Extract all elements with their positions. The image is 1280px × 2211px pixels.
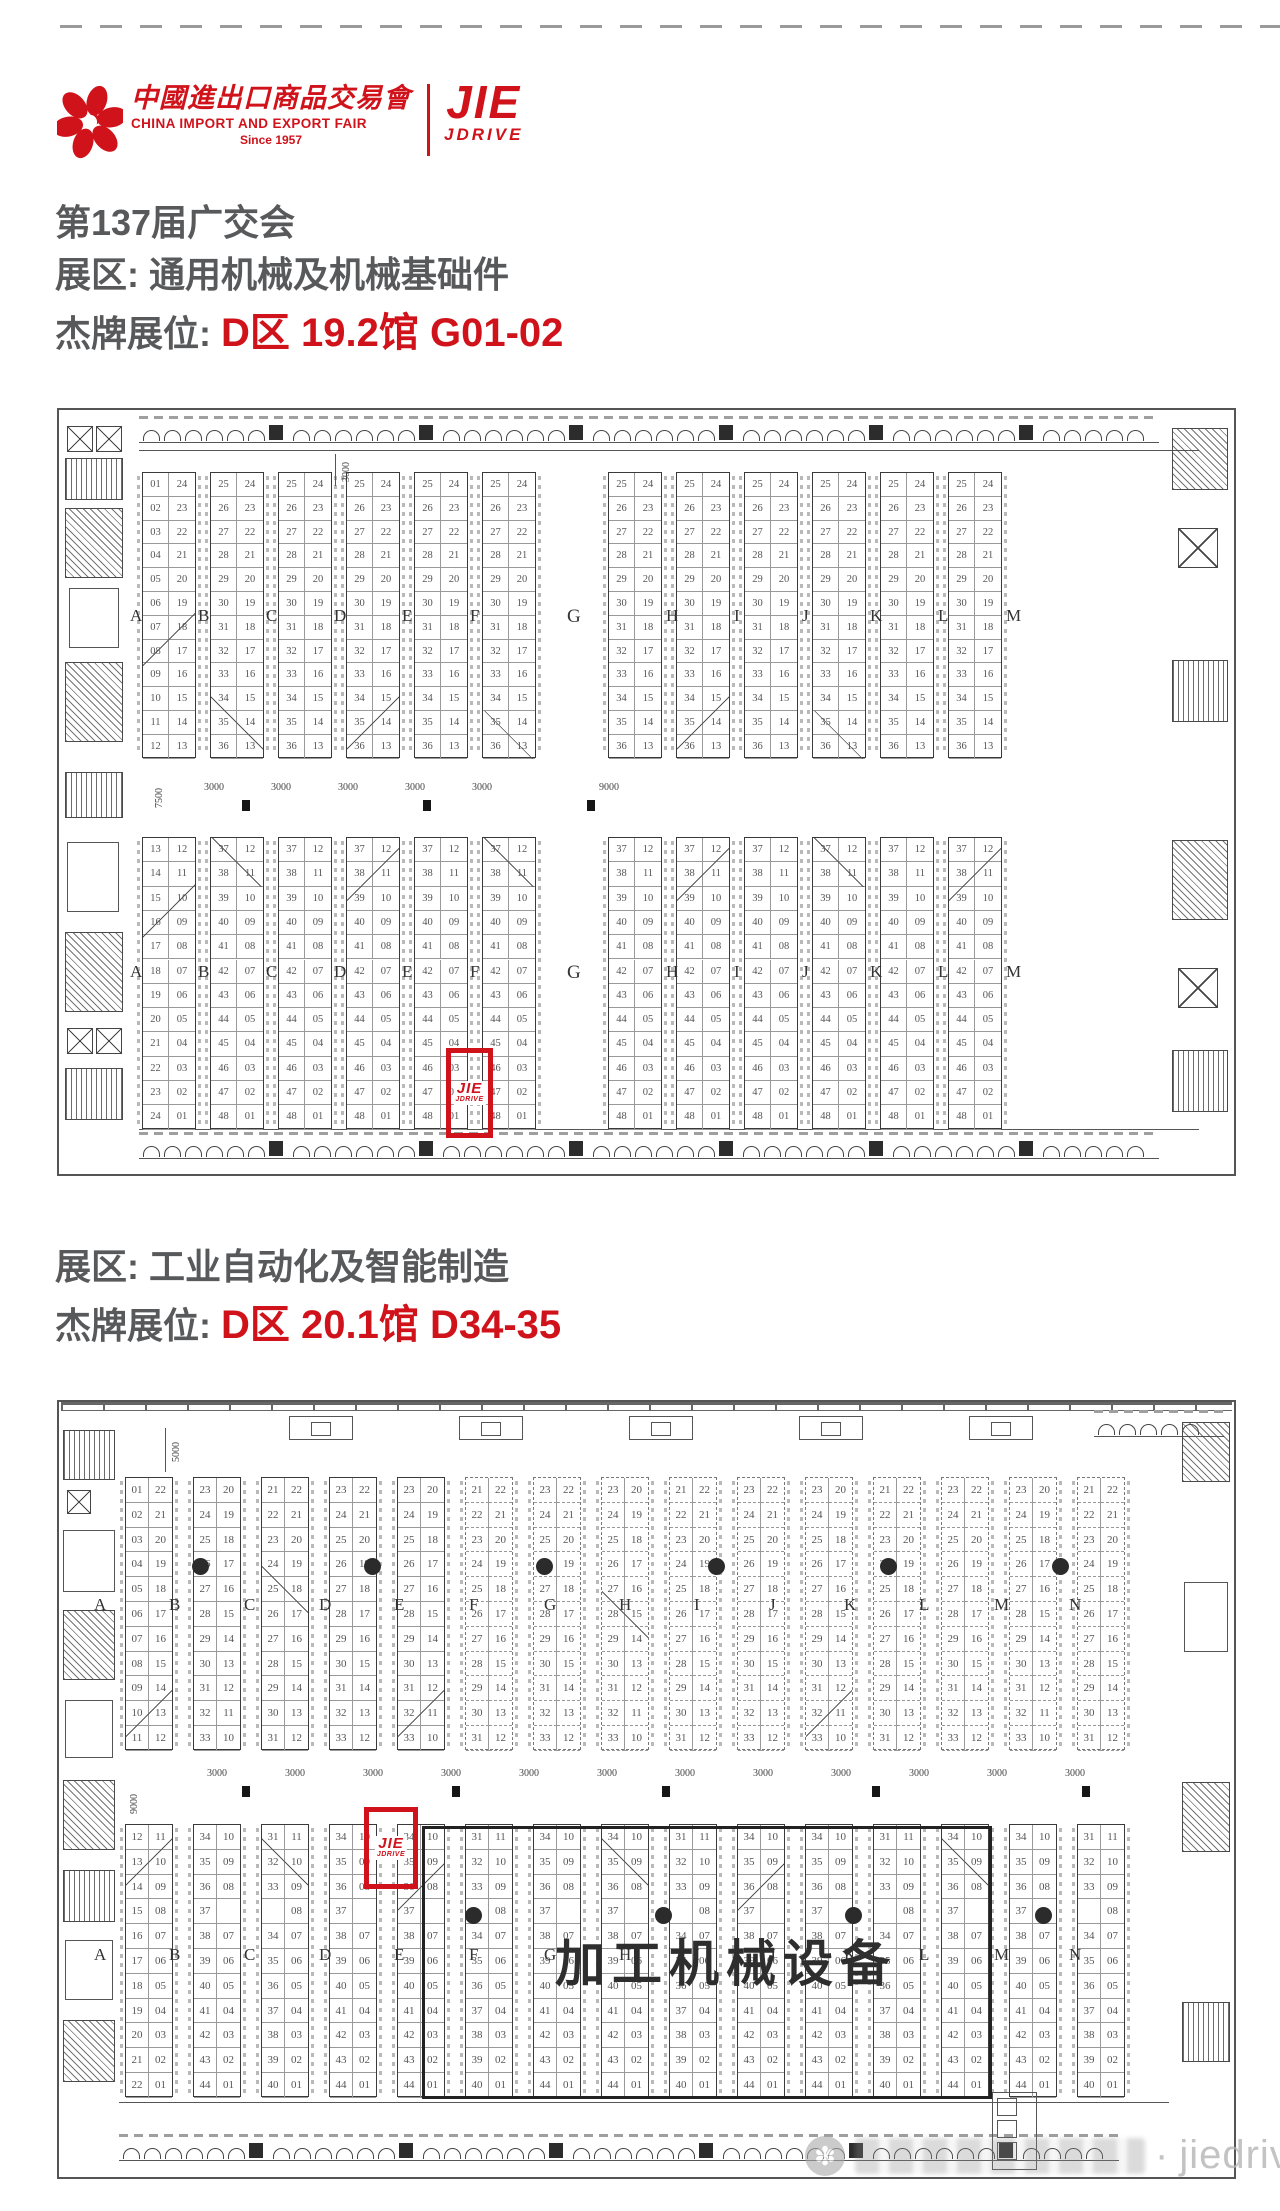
booth-cell: 23 (1010, 1478, 1033, 1503)
booth-cell: 26 (874, 1602, 897, 1627)
booth-cell: 43 (738, 2048, 761, 2073)
booth-cell: 15 (217, 1602, 240, 1627)
booth-cell: 03 (353, 2023, 376, 2048)
booth-cell: 12 (441, 838, 467, 862)
door-arc-icon (743, 430, 760, 441)
booth-cell: 25 (534, 1528, 557, 1553)
booth-cell: 45 (211, 1032, 237, 1056)
booth-cell: 17 (907, 640, 933, 664)
booth-cell: 36 (1010, 1875, 1033, 1900)
door-arc-icon (464, 1146, 481, 1157)
booth-cell: 12 (217, 1676, 240, 1701)
booth-cell: 45 (881, 1032, 907, 1056)
booth-cell: 05 (1101, 1974, 1124, 1999)
door-arc-icon (614, 1146, 631, 1157)
booth-cell: 20 (285, 1528, 308, 1553)
booth-island: 2524262327222821292030193118321733163415… (346, 472, 400, 758)
booth-cell: 23 (262, 1528, 285, 1553)
booth-cell: 29 (813, 568, 839, 592)
door-arc-icon (914, 430, 931, 441)
gate-block-icon (719, 1141, 733, 1156)
booth-cell: 01 (143, 473, 169, 497)
booth-cell: 43 (483, 984, 509, 1008)
booth-island: 3712381139104009410842074306440545044603… (676, 837, 730, 1129)
booth-cell: 12 (305, 838, 331, 862)
door-marker (1082, 1786, 1090, 1797)
booth-cell: 47 (677, 1081, 703, 1105)
micro-text-strip (311, 1828, 314, 2093)
taken-booth-slash (677, 838, 729, 911)
booth-cell: 09 (217, 1850, 240, 1875)
booth-cell: 21 (489, 1503, 512, 1528)
booth-cell: 16 (907, 663, 933, 687)
booth-cell: 20 (761, 1528, 784, 1553)
booth-cell (217, 1899, 240, 1924)
service-room (67, 842, 119, 912)
booth-cell: 16 (126, 1924, 149, 1949)
booth-cell: 18 (965, 1577, 988, 1602)
door-arc-icon (273, 2148, 290, 2159)
booth-cell: 14 (965, 1676, 988, 1701)
booth-cell: 14 (169, 711, 195, 735)
micro-text-strip (732, 1481, 735, 1746)
booth-cell: 29 (806, 1627, 829, 1652)
booth-cell: 38 (279, 862, 305, 886)
booth-cell: 41 (738, 1999, 761, 2024)
door-arc-icon (248, 430, 265, 441)
booth-cell: 25 (330, 1528, 353, 1553)
booth-cell: 06 (489, 1949, 512, 1974)
booth-cell: 03 (143, 521, 169, 545)
booth-cell: 38 (466, 2023, 489, 2048)
bottom-gate-band (139, 1132, 1159, 1162)
booth-cell: 44 (483, 1008, 509, 1032)
booth-cell: 42 (211, 960, 237, 984)
elevator-diag (68, 427, 92, 451)
aisle-letter: I (734, 606, 740, 626)
booth-cell: 47 (347, 1081, 373, 1105)
dimension-label: 3000 (441, 1768, 461, 1779)
booth-cell: 20 (625, 1478, 648, 1503)
booth-cell: 19 (373, 592, 399, 616)
booth-cell: 05 (907, 1008, 933, 1032)
taken-booth-slash (262, 1825, 308, 1899)
booth-cell: 26 (738, 1552, 761, 1577)
booth-cell: 31 (881, 616, 907, 640)
booth-cell: 32 (483, 640, 509, 664)
booth-cell: 16 (1101, 1627, 1124, 1652)
booth-cell: 07 (897, 1924, 920, 1949)
booth-cell: 25 (942, 1528, 965, 1553)
booth-cell: 28 (609, 544, 635, 568)
booth-cell: 01 (839, 1105, 865, 1129)
booth-cell: 34 (415, 687, 441, 711)
micro-text-strip (583, 1481, 586, 1746)
booth-cell: 06 (217, 1949, 240, 1974)
booth-cell: 30 (211, 592, 237, 616)
booth-island: 3111321033090834073506360537043803390240… (1077, 1824, 1125, 2097)
booth-cell: 34 (609, 687, 635, 711)
booth-island: 2524262327222821292030193118321733163415… (608, 472, 662, 758)
aisle-letter: C (244, 1945, 255, 1965)
machining-zone-label: 加工机械设备 (555, 1924, 897, 1996)
service-room (69, 588, 119, 648)
booth-cell: 04 (237, 1032, 263, 1056)
booth-cell: 39 (813, 887, 839, 911)
door-arc-icon (1161, 1424, 1178, 1435)
booth-cell: 32 (881, 640, 907, 664)
booth-cell: 20 (489, 1528, 512, 1553)
booth-cell: 28 (194, 1602, 217, 1627)
booth-cell: 08 (907, 935, 933, 959)
column-dot (536, 1558, 553, 1575)
taken-booth-slash (813, 838, 865, 887)
booth-cell: 38 (874, 2023, 897, 2048)
booth-cell: 33 (745, 663, 771, 687)
door-arc-icon (893, 1146, 910, 1157)
booth-cell: 34 (881, 687, 907, 711)
brand-jdrive-text: JDRIVE (444, 126, 523, 144)
booth-cell: 31 (194, 1676, 217, 1701)
booth-cell: 35 (415, 711, 441, 735)
booth-cell: 41 (745, 935, 771, 959)
booth-cell: 23 (305, 497, 331, 521)
booth-cell: 13 (1033, 1652, 1056, 1677)
dimension-label: 3000 (338, 782, 358, 793)
booth-cell: 16 (839, 663, 865, 687)
booth-cell: 26 (949, 497, 975, 521)
booth-cell: 32 (194, 1701, 217, 1726)
elevator-icon (67, 1490, 91, 1514)
booth-cell: 44 (194, 2073, 217, 2098)
booth-cell: 13 (625, 1652, 648, 1677)
booth-cell: 13 (169, 735, 195, 759)
hatched-room (1182, 1422, 1230, 1482)
booth-cell: 45 (415, 1032, 441, 1056)
booth-cell: 27 (211, 521, 237, 545)
booth-cell: 20 (353, 1528, 376, 1553)
watermark-dot: · (1155, 2133, 1169, 2178)
booth-cell: 23 (194, 1478, 217, 1503)
booth-cell: 40 (211, 911, 237, 935)
booth-cell: 16 (285, 1627, 308, 1652)
booth-cell: 01 (829, 2073, 852, 2098)
booth-cell: 26 (483, 497, 509, 521)
booth-cell: 43 (949, 984, 975, 1008)
booth-cell: 15 (1033, 1602, 1056, 1627)
aisle-letter: N (1069, 1595, 1081, 1615)
door-arc-icon (656, 1146, 673, 1157)
booth-cell: 15 (907, 687, 933, 711)
booth-cell: 37 (609, 838, 635, 862)
booth-cell: 43 (534, 2048, 557, 2073)
taken-booth-slash (398, 1676, 444, 1750)
booth-cell: 12 (1101, 1726, 1124, 1751)
booth-cell: 15 (557, 1652, 580, 1677)
door-arc-icon (848, 430, 865, 441)
booth-cell: 41 (677, 935, 703, 959)
booth-cell: 40 (262, 2073, 285, 2098)
door-arc-icon (743, 1146, 760, 1157)
booth-cell: 08 (897, 1899, 920, 1924)
booth-cell: 01 (149, 2073, 172, 2098)
booth-cell: 18 (353, 1577, 376, 1602)
booth-cell: 21 (305, 544, 331, 568)
booth-cell: 30 (942, 1652, 965, 1677)
booth-cell: 46 (677, 1057, 703, 1081)
booth-island: 3712381139104009410842074306440545044603… (278, 837, 332, 1129)
booth-cell: 43 (194, 2048, 217, 2073)
micro-text-strip (402, 841, 405, 1125)
booth-cell (874, 1899, 897, 1924)
booth-cell: 31 (279, 616, 305, 640)
booth-cell: 25 (609, 473, 635, 497)
booth-cell: 22 (143, 1057, 169, 1081)
booth-cell: 33 (347, 663, 373, 687)
booth-cell: 36 (194, 1875, 217, 1900)
floorplan-hall-19-2: 0124022303220421052006190718081709161015… (57, 408, 1236, 1176)
booth-cell: 40 (1078, 2073, 1101, 2098)
booth-cell: 02 (703, 1081, 729, 1105)
booth-cell: 17 (217, 1552, 240, 1577)
booth-cell: 10 (761, 1825, 784, 1850)
booth-cell: 18 (635, 616, 661, 640)
door-arc-icon (1140, 1424, 1157, 1435)
elevator-icon (1178, 968, 1218, 1008)
booth-cell: 34 (194, 1825, 217, 1850)
booth-cell: 34 (745, 687, 771, 711)
booth-cell: 09 (897, 1875, 920, 1900)
booth-cell: 31 (1078, 1726, 1101, 1751)
booth-cell: 39 (881, 887, 907, 911)
booth-cell: 02 (635, 1081, 661, 1105)
booth-cell: 29 (279, 568, 305, 592)
booth-cell: 20 (143, 1008, 169, 1032)
booth-cell: 42 (415, 960, 441, 984)
booth-cell: 08 (285, 1899, 308, 1924)
booth-cell: 14 (421, 1627, 444, 1652)
booth-cell: 05 (489, 1974, 512, 1999)
booth-cell: 08 (373, 935, 399, 959)
booth-cell: 44 (677, 1008, 703, 1032)
booth-cell: 32 (677, 640, 703, 664)
booth-cell: 47 (211, 1081, 237, 1105)
booth-cell: 47 (949, 1081, 975, 1105)
micro-text-strip (596, 1481, 599, 1746)
booth-cell: 08 (1101, 1899, 1124, 1924)
booth-cell: 24 (330, 1503, 353, 1528)
booth-cell: 33 (1010, 1726, 1033, 1751)
micro-text-strip (1127, 1828, 1130, 2093)
booth-cell: 21 (285, 1503, 308, 1528)
booth-cell: 30 (347, 592, 373, 616)
door-arc-icon (977, 430, 994, 441)
door-arc-icon (356, 430, 373, 441)
booth-cell: 12 (693, 1726, 716, 1751)
booth-cell: 01 (635, 1105, 661, 1129)
booth-island: 0122022103200419051806170716081509141013… (125, 1477, 173, 1750)
booth-cell: 20 (897, 1528, 920, 1553)
dimension-line (165, 1428, 166, 1472)
booth-cell: 15 (126, 1899, 149, 1924)
booth-cell: 01 (907, 1105, 933, 1129)
booth-cell: 48 (881, 1105, 907, 1129)
micro-text-strip (447, 1828, 450, 2093)
aisle-letter: B (198, 606, 209, 626)
booth-cell: 38 (262, 2023, 285, 2048)
booth-cell: 12 (489, 1726, 512, 1751)
micro-text-strip (664, 1481, 667, 1746)
elevator-diag (97, 1029, 121, 1053)
booth-cell: 25 (1078, 1577, 1101, 1602)
jie-logo-line2: JDRIVE (455, 1096, 483, 1104)
booth-cell: 42 (279, 960, 305, 984)
booth-cell: 24 (738, 1503, 761, 1528)
door-arc-icon (593, 430, 610, 441)
booth-cell: 18 (557, 1577, 580, 1602)
booth-cell: 05 (839, 1008, 865, 1032)
booth-cell: 04 (143, 544, 169, 568)
aisle-letter: I (734, 962, 740, 982)
booth-cell: 14 (217, 1627, 240, 1652)
booth-cell: 28 (279, 544, 305, 568)
booth-cell: 04 (1101, 1999, 1124, 2024)
booth-cell: 13 (829, 1652, 852, 1677)
booth-cell: 40 (466, 2073, 489, 2098)
booth-cell: 20 (839, 568, 865, 592)
booth-cell: 23 (441, 497, 467, 521)
booth-cell: 10 (829, 1825, 852, 1850)
aisle-letter: J (769, 1595, 776, 1615)
door-marker (872, 1786, 880, 1797)
booth-cell: 21 (237, 544, 263, 568)
booth-cell: 42 (602, 2023, 625, 2048)
booth-cell: 12 (353, 1726, 376, 1751)
booth-cell: 31 (466, 1825, 489, 1850)
booth-cell: 06 (305, 984, 331, 1008)
booth-cell: 47 (609, 1081, 635, 1105)
booth-cell: 01 (509, 1105, 535, 1129)
hatched-room (65, 662, 123, 742)
booth-cell: 31 (670, 1726, 693, 1751)
booth-cell: 03 (1033, 2023, 1056, 2048)
booth-cell: 08 (509, 935, 535, 959)
dimension-label: 3000 (831, 1768, 851, 1779)
booth-cell: 10 (509, 887, 535, 911)
booth-cell: 16 (635, 663, 661, 687)
taken-booth-slash (126, 1676, 172, 1750)
door-arc-icon (248, 1146, 265, 1157)
booth-cell: 33 (670, 1875, 693, 1900)
booth-cell: 11 (441, 862, 467, 886)
booth-cell: 01 (285, 2073, 308, 2098)
booth-cell: 44 (415, 1008, 441, 1032)
micro-text-strip (311, 1481, 314, 1746)
booth-cell: 48 (813, 1105, 839, 1129)
booth-cell: 48 (745, 1105, 771, 1129)
dimension-label: 3000 (909, 1768, 929, 1779)
booth-cell: 10 (421, 1825, 444, 1850)
booth-cell: 41 (279, 935, 305, 959)
booth-cell: 27 (262, 1627, 285, 1652)
booth-cell: 13 (1101, 1701, 1124, 1726)
booth-cell: 23 (771, 497, 797, 521)
booth-cell: 35 (609, 711, 635, 735)
booth-island: 2524262327222821292030193118321733163415… (880, 472, 934, 758)
door-arc-icon (548, 430, 565, 441)
booth-cell: 09 (237, 911, 263, 935)
door-arc-icon (935, 430, 952, 441)
booth-island: 2122222123202419251826172716281529143013… (873, 1477, 921, 1750)
booth-cell: 23 (466, 1528, 489, 1553)
booth-cell: 26 (347, 497, 373, 521)
booth-cell: 29 (881, 568, 907, 592)
booth-cell: 08 (703, 935, 729, 959)
booth-cell: 06 (1101, 1949, 1124, 1974)
booth-cell: 03 (373, 1057, 399, 1081)
booth-cell: 16 (771, 663, 797, 687)
booth-cell (670, 1899, 693, 1924)
booth-cell: 28 (881, 544, 907, 568)
booth-cell: 40 (483, 911, 509, 935)
micro-text-strip (256, 1828, 259, 2093)
booth-cell: 27 (745, 521, 771, 545)
fair-logo-text: 中國進出口商品交易會 CHINA IMPORT AND EXPORT FAIR … (131, 82, 411, 148)
gate-block-icon (569, 1141, 583, 1156)
booth-cell: 19 (625, 1503, 648, 1528)
booth-cell: 42 (677, 960, 703, 984)
aisle-letter: I (694, 1595, 700, 1615)
door-arc-icon (356, 1146, 373, 1157)
booth-cell: 31 (874, 1726, 897, 1751)
micro-text-strip (875, 841, 878, 1125)
booth-cell: 18 (373, 616, 399, 640)
jie-booth-logo: JIEJDRIVE (453, 1081, 485, 1105)
booth-cell: 16 (441, 663, 467, 687)
door-arc-icon (785, 1146, 802, 1157)
door-arc-icon (377, 430, 394, 441)
micro-text-strip (460, 1481, 463, 1746)
booth-cell: 29 (745, 568, 771, 592)
booth-island: 3410350936083738073906400541044203430244… (193, 1824, 241, 2097)
booth-cell: 10 (635, 887, 661, 911)
booth-cell: 25 (813, 473, 839, 497)
aisle-letter: M (1006, 606, 1021, 626)
header-logo-row: 中國進出口商品交易會 CHINA IMPORT AND EXPORT FAIR … (57, 82, 523, 162)
jie-booth-logo: JIEJDRIVE (375, 1836, 407, 1860)
booth-cell: 13 (761, 1701, 784, 1726)
service-room (821, 1422, 841, 1436)
booth-cell: 27 (330, 1577, 353, 1602)
dimension-label: 9000 (599, 782, 619, 793)
booth-cell: 35 (534, 1850, 557, 1875)
booth-cell: 27 (466, 1627, 489, 1652)
booth-island: 2122222123202419251826172716281529143013… (261, 1477, 309, 1750)
booth-cell: 37 (670, 1999, 693, 2024)
booth-cell: 19 (975, 592, 1001, 616)
booth-cell: 11 (897, 1825, 920, 1850)
booth-cell: 23 (874, 1528, 897, 1553)
booth-cell: 35 (262, 1949, 285, 1974)
booth-cell: 04 (965, 1999, 988, 2024)
booth-cell: 04 (897, 1999, 920, 2024)
booth-cell: 39 (330, 1949, 353, 1974)
booth-cell: 44 (813, 1008, 839, 1032)
booth-cell: 24 (373, 473, 399, 497)
booth-cell: 29 (415, 568, 441, 592)
booth-cell: 25 (415, 473, 441, 497)
booth-cell: 32 (670, 1850, 693, 1875)
